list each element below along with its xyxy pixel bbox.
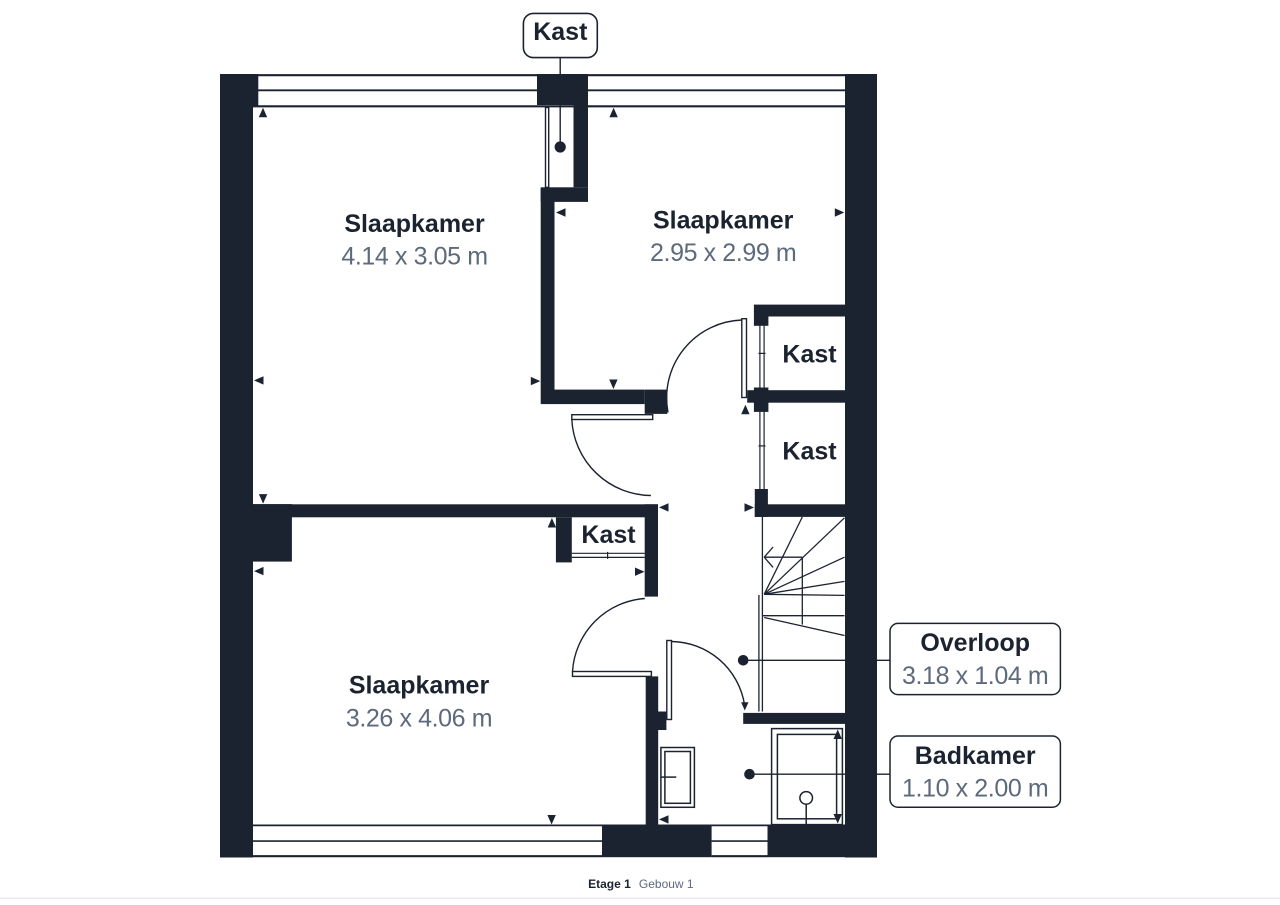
svg-text:Slaapkamer: Slaapkamer bbox=[349, 671, 490, 699]
svg-text:Kast: Kast bbox=[782, 438, 837, 466]
svg-text:Overloop: Overloop bbox=[920, 629, 1030, 657]
svg-text:Badkamer: Badkamer bbox=[915, 742, 1036, 770]
svg-text:4.14 x 3.05 m: 4.14 x 3.05 m bbox=[341, 242, 487, 270]
svg-text:Gebouw 1: Gebouw 1 bbox=[639, 877, 694, 891]
svg-text:2.95 x 2.99 m: 2.95 x 2.99 m bbox=[650, 239, 796, 267]
svg-text:Kast: Kast bbox=[581, 521, 636, 549]
svg-text:3.26 x 4.06 m: 3.26 x 4.06 m bbox=[346, 705, 492, 733]
svg-text:Etage 1: Etage 1 bbox=[588, 877, 631, 891]
svg-text:1.10 x 2.00 m: 1.10 x 2.00 m bbox=[902, 775, 1048, 803]
svg-text:Slaapkamer: Slaapkamer bbox=[653, 207, 794, 235]
svg-text:Kast: Kast bbox=[533, 18, 588, 46]
svg-text:3.18 x 1.04 m: 3.18 x 1.04 m bbox=[902, 662, 1048, 690]
svg-text:Kast: Kast bbox=[782, 341, 837, 369]
svg-text:Slaapkamer: Slaapkamer bbox=[344, 210, 485, 238]
